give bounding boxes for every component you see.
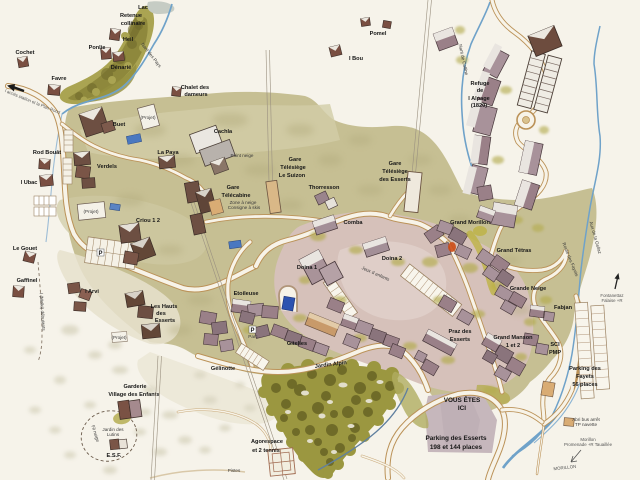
svg-text:TP navette: TP navette [575, 422, 598, 427]
svg-text:Buet: Buet [113, 122, 126, 128]
svg-text:Criou 1 2: Criou 1 2 [136, 218, 160, 224]
svg-text:Parking des Esserts: Parking des Esserts [425, 435, 487, 442]
svg-text:VOUS ÊTES: VOUS ÊTES [444, 395, 481, 404]
svg-text:Pomel: Pomel [370, 31, 387, 37]
svg-text:Télésiège: Télésiège [280, 165, 306, 171]
svg-text:des Esserts: des Esserts [379, 177, 410, 183]
svg-text:Consigne à skis: Consigne à skis [228, 205, 261, 210]
svg-text:de: de [477, 88, 484, 94]
svg-text:Gitelles: Gitelles [287, 341, 307, 347]
svg-text:Comba: Comba [344, 220, 364, 226]
svg-text:Parking des: Parking des [569, 366, 601, 372]
svg-text:(Projet): (Projet) [111, 335, 127, 340]
svg-text:Falaise +R: Falaise +R [601, 298, 622, 303]
svg-text:PMP: PMP [549, 350, 561, 356]
svg-text:Doina 2: Doina 2 [382, 256, 402, 262]
svg-text:La Paya: La Paya [157, 150, 179, 156]
svg-text:et 2 tennis: et 2 tennis [252, 448, 280, 454]
svg-text:des: des [156, 311, 166, 317]
svg-text:Parc: Parc [248, 334, 258, 339]
svg-text:P: P [98, 251, 102, 257]
svg-text:Gare: Gare [227, 185, 240, 191]
svg-text:l Ubac: l Ubac [21, 180, 38, 186]
svg-text:Fayets: Fayets [576, 374, 594, 380]
svg-text:(Projet): (Projet) [140, 115, 156, 120]
svg-text:Dénarié: Dénarié [111, 65, 132, 71]
svg-text:Lutins: Lutins [107, 432, 120, 437]
svg-text:Grand Morillon: Grand Morillon [450, 220, 490, 226]
svg-text:Favre: Favre [52, 76, 67, 82]
svg-text:Télésiège: Télésiège [382, 169, 408, 175]
svg-text:Ponlie: Ponlie [89, 45, 106, 51]
svg-text:collinaire: collinaire [121, 21, 146, 27]
svg-text:E.S.F.: E.S.F. [107, 453, 122, 459]
svg-text:l Alpage: l Alpage [468, 96, 490, 102]
svg-text:Lac: Lac [138, 5, 148, 11]
svg-text:Esserts: Esserts [450, 337, 470, 343]
svg-text:Pistes: Pistes [228, 468, 241, 473]
svg-text:Point neige: Point neige [231, 153, 254, 158]
svg-text:Gélinotte: Gélinotte [211, 366, 235, 372]
svg-text:Gare: Gare [389, 161, 402, 167]
svg-text:Le Gouet: Le Gouet [13, 246, 37, 252]
svg-text:Esserts: Esserts [155, 318, 175, 324]
svg-text:Chalet des: Chalet des [181, 85, 209, 91]
svg-text:Les Hauts: Les Hauts [151, 304, 178, 310]
svg-text:Heil: Heil [123, 37, 134, 43]
svg-text:Verdels: Verdels [97, 164, 117, 170]
svg-text:Le Suizon: Le Suizon [279, 173, 306, 179]
svg-text:Garderie: Garderie [123, 384, 146, 390]
svg-text:1 et 2: 1 et 2 [506, 343, 520, 349]
svg-text:Cachla: Cachla [214, 129, 233, 135]
svg-text:ICI: ICI [458, 405, 466, 412]
svg-text:Agorespace: Agorespace [251, 439, 283, 445]
svg-text:Village des Enfants: Village des Enfants [108, 392, 159, 398]
svg-text:Grande Neige: Grande Neige [510, 286, 546, 292]
svg-text:Gaffinel: Gaffinel [17, 278, 38, 284]
svg-text:Praz des: Praz des [448, 329, 471, 335]
svg-text:Grand Tétras: Grand Tétras [497, 248, 532, 254]
svg-text:Gare: Gare [289, 157, 302, 163]
svg-text:Promenade +R Tauaillée: Promenade +R Tauaillée [564, 442, 613, 447]
svg-text:Fabjan: Fabjan [554, 305, 573, 311]
svg-text:(Projet): (Projet) [83, 209, 99, 214]
svg-text:Retenue: Retenue [120, 13, 142, 19]
svg-text:Cochet: Cochet [16, 50, 35, 56]
svg-text:Doina 1: Doina 1 [297, 265, 317, 271]
svg-text:56 places: 56 places [572, 382, 597, 388]
svg-text:Etoileuse: Etoileuse [234, 291, 259, 297]
svg-text:Rod Bouât: Rod Bouât [33, 150, 61, 156]
svg-text:(1820): (1820) [471, 103, 487, 109]
svg-text:SCI: SCI [550, 342, 560, 348]
svg-text:Refuge: Refuge [471, 81, 490, 87]
svg-text:dameurs: dameurs [184, 92, 207, 98]
svg-text:I Bou: I Bou [349, 56, 364, 62]
svg-text:Grand Manson: Grand Manson [493, 335, 533, 341]
svg-text:Thorresson: Thorresson [309, 185, 340, 191]
svg-text:l Arvi: l Arvi [85, 289, 99, 295]
svg-text:Télécabine: Télécabine [222, 193, 251, 199]
svg-text:198 et 144 places: 198 et 144 places [430, 444, 483, 451]
